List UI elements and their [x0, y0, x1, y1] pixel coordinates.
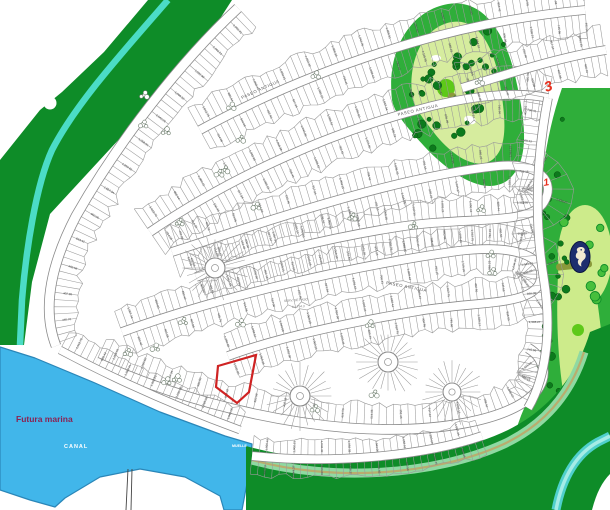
tree-icon	[590, 292, 600, 302]
tree-icon	[420, 91, 426, 97]
lot-area-number: 960.23	[487, 260, 491, 270]
canal-label: CANAL	[64, 444, 88, 450]
muelle-label: MUELLE	[232, 444, 247, 448]
tree-icon	[558, 241, 564, 247]
tree-icon	[597, 224, 604, 231]
lot-area-number: 1,044.37	[291, 465, 295, 477]
tree-icon	[560, 218, 569, 227]
lot-area-number: 1,002.21	[440, 201, 445, 213]
seahorse-icon	[570, 242, 590, 273]
lot-area-number: 782.15	[488, 229, 492, 239]
lot-area-number: 745.66	[497, 105, 502, 115]
lot-area-number: 1,012.75	[470, 229, 475, 241]
tree-icon	[547, 382, 553, 388]
tree-icon	[456, 128, 465, 137]
tree-icon	[427, 117, 431, 121]
lot-area-number: 1,032.30	[320, 441, 324, 453]
lot-area-number: 782.15	[519, 169, 529, 173]
futura-marina-label: Futura marina	[16, 414, 73, 424]
tree-icon	[430, 145, 437, 152]
tree-icon	[421, 77, 426, 82]
tree-icon	[468, 60, 474, 66]
tree-icon	[451, 133, 457, 139]
lot-area-number: 402.56	[474, 283, 479, 293]
lot-area-number: 465.76	[525, 72, 530, 82]
lot-area-number: 514.06	[370, 409, 374, 419]
lot-area-number: 745.66	[377, 464, 382, 474]
lot-area-number: 402.56	[584, 23, 589, 33]
lot-area-number: 960.23	[263, 465, 268, 475]
tree-icon	[601, 265, 608, 272]
lot-area-number: 880.44	[496, 201, 501, 211]
tree-icon	[465, 121, 469, 125]
lot-area-number: 1,060.41	[468, 201, 473, 213]
lot-area-number: 1,338.27	[508, 176, 512, 188]
lot-area-number: 614.06	[340, 408, 345, 418]
lot-area-number: 1,068.38	[347, 440, 352, 452]
lot-area-number: 1,002.21	[292, 440, 296, 452]
lot-area-number: 1,060.41	[264, 438, 269, 450]
map-canvas: 1,060.411,002.211,032.301,068.381,043.06…	[0, 0, 610, 510]
tree-icon	[549, 253, 555, 259]
tree-icon	[562, 285, 570, 293]
site-plan-map: 1,060.411,002.211,032.301,068.381,043.06…	[0, 0, 610, 510]
tree-icon	[501, 42, 505, 46]
lot-area-number: 960.23	[517, 231, 527, 236]
lot-area-number: 152.46	[399, 409, 403, 419]
lot-area-number: 1,044.37	[508, 146, 512, 158]
tree-icon	[586, 281, 595, 290]
tree-icon	[564, 260, 569, 265]
tree-icon	[560, 117, 564, 121]
lot-area-number: 1,115.95	[517, 200, 529, 204]
band-notch	[44, 97, 57, 110]
lot-area-number: 836.09	[320, 466, 324, 476]
lot-area-number: 402.56	[498, 228, 503, 238]
lot-area-number: 1,338.27	[529, 320, 541, 324]
lot-area-number: 917.34	[427, 408, 432, 418]
lot-area-number: 1,338.27	[348, 463, 353, 475]
